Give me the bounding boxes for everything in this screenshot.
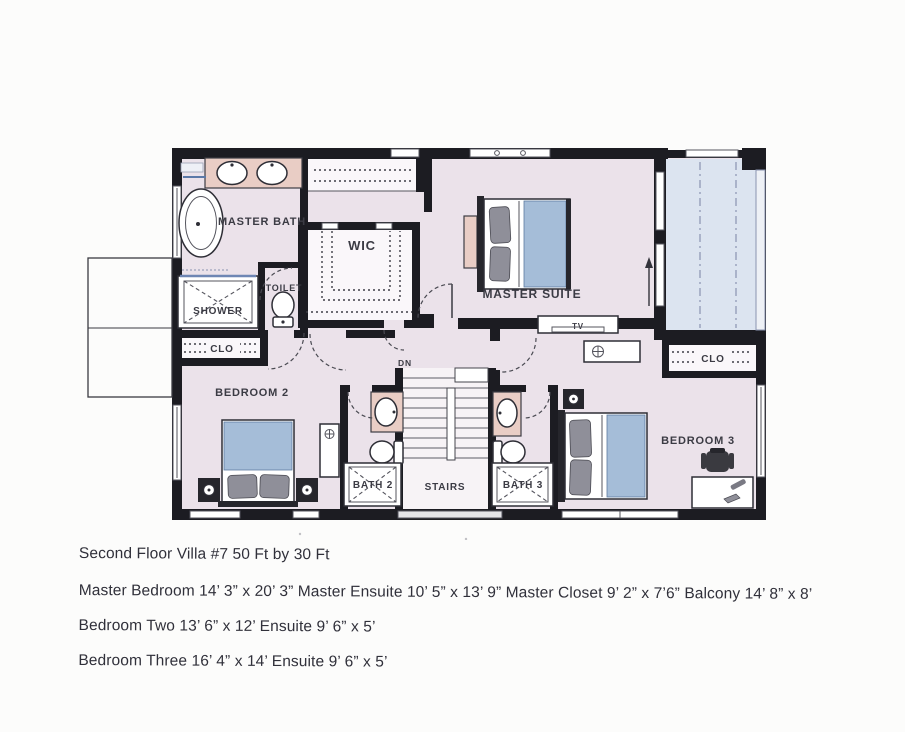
shelf-annotation [181,163,203,172]
scanned-floor-plan-page: MASTER BATH SHOWER TOILET CLO [0,0,905,732]
desk-with-lamp [584,341,640,362]
balcony-door-panel [656,172,664,230]
label-master-suite: MASTER SUITE [483,287,582,301]
master-dimensions-line: Master Bedroom 14’ 3” x 20’ 3” Master En… [79,582,813,604]
pillow [569,420,591,458]
label-closet-bedroom2: CLO [210,344,234,355]
bedroom2-bed [218,420,298,507]
nightstand [563,389,584,409]
bedroom-two-dimensions-line: Bedroom Two 13’ 6” x 12’ Ensuite 9’ 6” x… [79,617,813,639]
toilet-icon [370,441,394,463]
label-bedroom2: BEDROOM 2 [215,387,289,399]
pillow [260,475,290,499]
nightstand [198,478,220,502]
label-bath2: BATH 2 [353,480,393,491]
label-wic: WIC [348,238,376,253]
plan-caption: Second Floor Villa #7 50 Ft by 30 Ft Mas… [78,545,812,693]
label-bath3: BATH 3 [503,480,543,491]
label-master-bath: MASTER BATH [218,216,306,228]
bench [464,216,477,268]
toilet-icon [501,441,525,463]
pillow [228,474,258,498]
label-down: DN [398,358,412,368]
balcony-rail [756,170,765,330]
stair-rail [447,388,455,460]
label-stairs: STAIRS [425,482,466,493]
label-bedroom3: BEDROOM 3 [661,435,735,447]
desk [692,477,753,508]
floor-plan-drawing: MASTER BATH SHOWER TOILET CLO [0,0,905,540]
balcony-floor [664,159,757,331]
hall-closet-floor [308,159,416,191]
label-closet-bedroom3: CLO [701,354,725,365]
master-bed [477,196,571,292]
toilet-tank [394,441,403,464]
pillow [489,247,510,282]
bedroom3-bed [558,410,647,502]
scan-speck [299,533,301,535]
headboard [558,410,565,502]
headboard [218,501,298,507]
pillow [569,460,591,496]
balcony-door-panel [656,244,664,306]
nightstand [296,478,318,502]
tv-console: TV [538,316,618,333]
roof-outline [88,258,172,397]
headboard [477,196,484,292]
shower-stall: SHOWER [178,270,258,328]
toilet-icon [272,292,294,318]
bedroom-three-dimensions-line: Bedroom Three 16’ 4” x 14’ Ensuite 9’ 6”… [78,652,812,674]
label-shower: SHOWER [193,306,243,317]
scan-speck [465,538,467,540]
stair-landing [455,368,488,382]
tall-cabinet [320,424,339,477]
plan-title: Second Floor Villa #7 50 Ft by 30 Ft [79,545,813,567]
pillow [489,207,511,244]
